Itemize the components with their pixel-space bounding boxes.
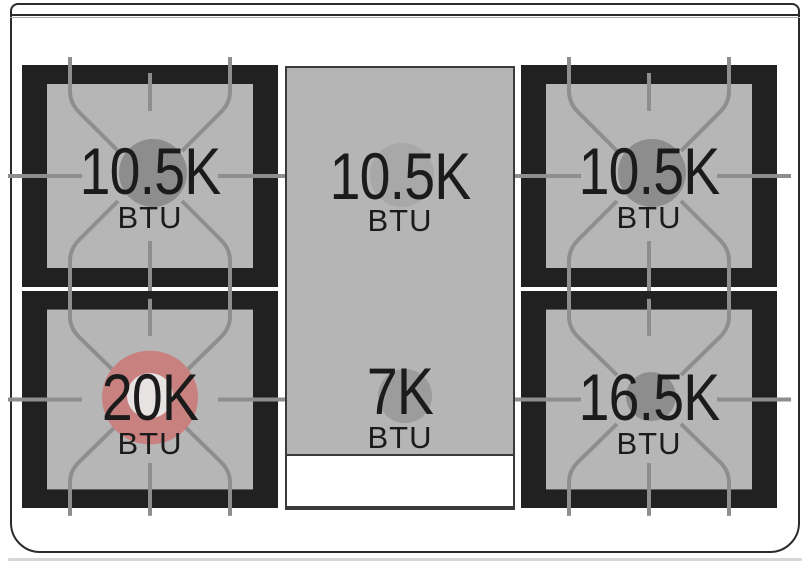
burner-btu-value: 20K (42, 364, 257, 430)
burner-btu-unit: BTU (22, 428, 278, 459)
burner-btu-unit: BTU (22, 202, 278, 233)
burner-btu-value: 10.5K (42, 138, 257, 204)
cooktop-diagram: 10.5K BTU 10.5K BTU (0, 0, 810, 568)
backguard-rail-line (10, 14, 800, 16)
burner-front-right: 16.5K BTU (521, 291, 777, 508)
burner-btu-value: 10.5K (541, 138, 756, 204)
burner-btu-value: 10.5K (305, 143, 495, 209)
burner-btu-unit: BTU (287, 205, 513, 236)
burner-btu-value: 16.5K (541, 364, 756, 430)
burner-rear-left: 10.5K BTU (22, 65, 278, 287)
griddle-panel: 10.5K BTU 7K BTU (285, 66, 515, 510)
burner-btu-unit: BTU (521, 428, 777, 459)
burner-front-left: 20K BTU (22, 291, 278, 508)
burner-rear-right: 10.5K BTU (521, 65, 777, 287)
burner-btu-value: 7K (305, 358, 495, 424)
griddle-handle-strip (287, 454, 513, 506)
front-edge-shadow (8, 558, 802, 561)
burner-btu-unit: BTU (287, 422, 513, 453)
burner-btu-unit: BTU (521, 202, 777, 233)
backguard-rail-shadow (10, 17, 800, 18)
